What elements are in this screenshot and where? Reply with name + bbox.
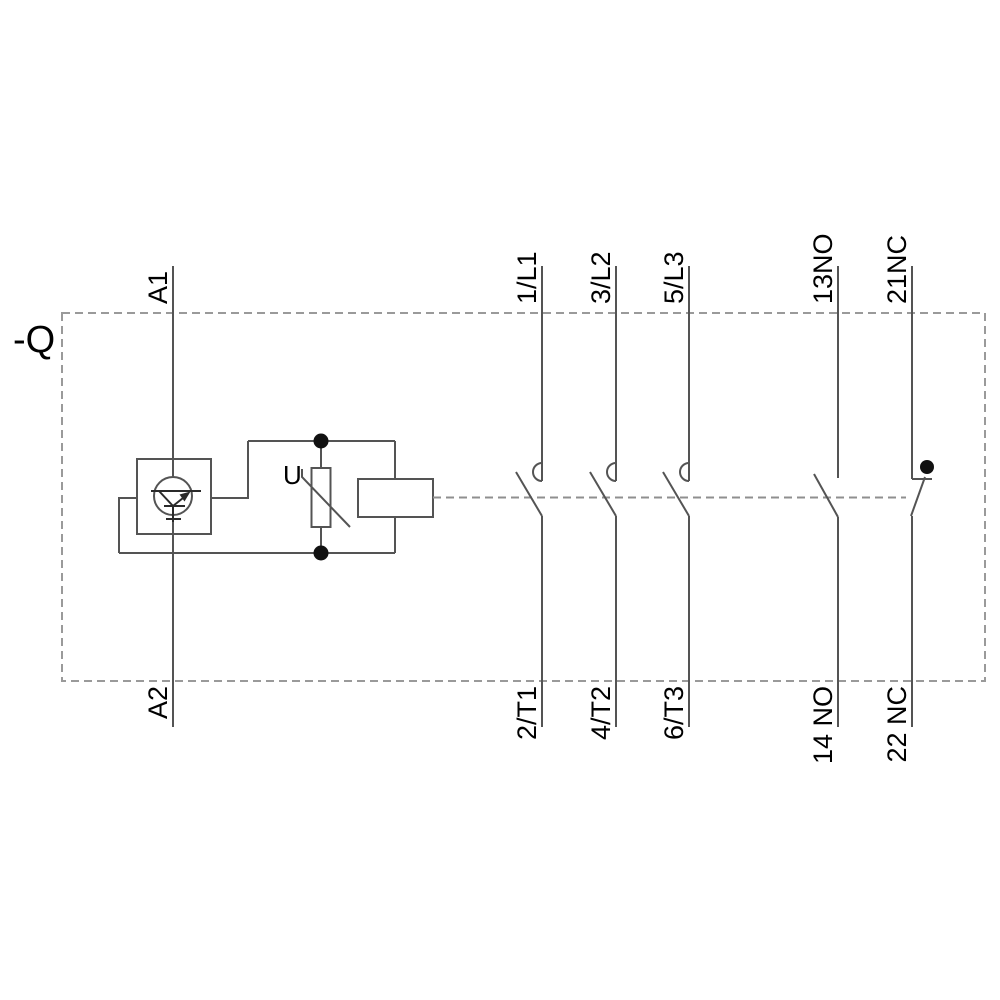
terminal-label-21nc: 21NC <box>882 235 912 304</box>
pole3-fixed-contact-arc <box>680 463 689 481</box>
pole2-fixed-contact-arc <box>607 463 616 481</box>
terminal-label-22nc: 22 NC <box>882 686 912 763</box>
varistor-label: U <box>283 460 302 490</box>
main-contact-pole-2: 3/L2 4/T2 <box>586 251 616 740</box>
junction-dot-bottom <box>314 546 329 561</box>
pole1-blade <box>516 472 542 516</box>
terminal-label-a1: A1 <box>143 271 173 304</box>
terminal-label-a2: A2 <box>143 686 173 719</box>
device-label: -Q <box>13 319 55 361</box>
junction-dot-top <box>314 434 329 449</box>
device-outline-dashed <box>62 313 985 681</box>
terminal-label-1l1: 1/L1 <box>512 251 542 304</box>
coil-loop-left-wire <box>119 498 137 553</box>
aux-contact-nc: 21NC 22 NC <box>882 235 934 763</box>
coil-circuit: U A1 A2 <box>119 266 433 727</box>
contactor-schematic: -Q U A1 A2 <box>0 0 1000 1000</box>
aux-nc-junction-dot <box>920 460 934 474</box>
terminal-label-2t1: 2/T1 <box>512 686 542 740</box>
coil-body <box>358 479 433 517</box>
terminal-label-4t2: 4/T2 <box>586 686 616 740</box>
aux-nc-blade <box>911 477 925 516</box>
main-contact-pole-3: 5/L3 6/T3 <box>659 251 689 740</box>
aux-no-blade <box>814 474 838 517</box>
pole2-blade <box>590 472 616 516</box>
terminal-label-14no: 14 NO <box>808 686 838 764</box>
terminal-label-3l2: 3/L2 <box>586 251 616 304</box>
terminal-label-6t3: 6/T3 <box>659 686 689 740</box>
pole3-blade <box>663 472 689 516</box>
coil-loop-right-wire <box>211 441 248 498</box>
terminal-label-5l3: 5/L3 <box>659 251 689 304</box>
terminal-label-13no: 13NO <box>808 233 838 304</box>
pole1-fixed-contact-arc <box>533 463 542 481</box>
main-contact-pole-1: 1/L1 2/T1 <box>512 251 542 740</box>
schematic-canvas: -Q U A1 A2 <box>0 0 1000 1000</box>
